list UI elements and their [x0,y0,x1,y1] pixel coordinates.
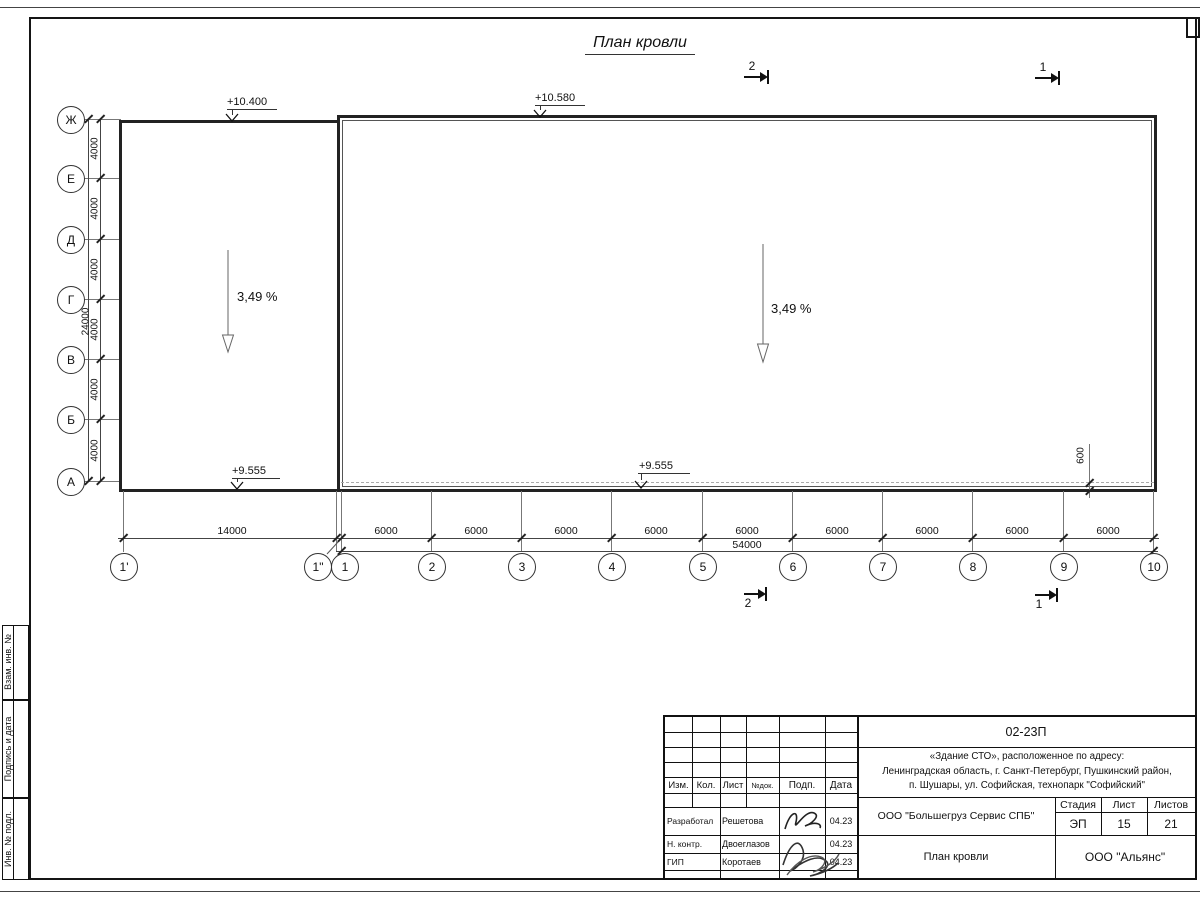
section-arrow-bar [767,70,769,84]
grid-bubble-col: 8 [959,553,987,581]
grid-bubble-row: А [57,468,85,496]
stamp-role: ГИП [667,853,720,870]
axis-line [1063,491,1064,552]
elevation-underline [535,105,585,106]
stamp-line [665,732,857,733]
dim-label-total: 54000 [717,539,777,551]
stamp-role: Н. контр. [667,835,720,853]
axis-line [431,491,432,552]
stamp-sheet-label: Лист [1101,797,1147,812]
dim-label: 6000 [361,525,411,537]
stamp-line [665,747,1195,748]
stamp-doc-number: 02-23П [857,717,1195,747]
drawing-title-wrap: План кровли [550,34,730,55]
stamp-person-name: Решетова [722,807,765,835]
dim-label: 6000 [992,525,1042,537]
grid-bubble-col: 6 [779,553,807,581]
grid-bubble-row: Ж [57,106,85,134]
stamp-role: Разработал [667,807,720,835]
grid-bubble-col: 4 [598,553,626,581]
dim-label-600: 600 [1076,441,1087,471]
elevation-arrow-icon [225,113,239,122]
dim-label-4000: 4000 [90,250,101,290]
axis-line [521,491,522,552]
stamp-sheets-value: 21 [1147,812,1195,835]
frame-strip-divider [13,625,14,880]
stamp-col-data: Дата [825,777,857,793]
dim-label: 6000 [812,525,862,537]
grid-bubble-col: 9 [1050,553,1078,581]
stamp-person-name: Двоеглазов [722,835,777,853]
corner-stamp-box [1186,17,1200,38]
stamp-col-izm: Изм. [665,777,692,793]
dim-label: 6000 [631,525,681,537]
section-arrow-bar [1058,71,1060,85]
stamp-date: 04.23 [825,835,857,853]
axis-line [611,491,612,552]
stamp-person-name: Коротаев [722,853,777,870]
stamp-sheet-value: 15 [1101,812,1147,835]
stamp-col-list: Лист [720,777,746,793]
grid-bubble-row: Г [57,286,85,314]
grid-bubble-col: 5 [689,553,717,581]
stamp-drawing-title: План кровли [857,835,1055,878]
stamp-address: «Здание СТО», расположенное по адресу: Л… [859,750,1195,795]
bubble-leader-line [326,541,340,555]
section-arrow-bar [1056,588,1058,602]
grid-bubble-col: 7 [869,553,897,581]
dim-label: 6000 [541,525,591,537]
stamp-date: 04.23 [825,807,857,835]
stamp-stage-label: Стадия [1055,797,1101,812]
dim-label-4000: 4000 [90,129,101,169]
grid-bubble-col: 3 [508,553,536,581]
grid-bubble-col: 1' [110,553,138,581]
dim-label: 6000 [451,525,501,537]
elevation-leader [641,473,642,480]
stamp-org: ООО "Большегруз Сервис СПБ" [857,797,1055,835]
grid-bubble-col: 1" [304,553,332,581]
section-mark-line [744,593,758,595]
frame-strip-label: Подпись и дата [3,701,13,797]
grid-bubble-row: В [57,346,85,374]
title-block: Изм. Кол. Лист №док. Подп. Дата Разработ… [663,715,1197,880]
axis-line [702,491,703,552]
elevation-underline [227,109,277,110]
slope-label: 3,49 % [771,301,811,316]
dim-label: 6000 [1083,525,1133,537]
dim-label-4000: 4000 [90,370,101,410]
grid-bubble-col: 1 [331,553,359,581]
section-mark-line [744,76,760,78]
stamp-col-kol: Кол. [692,777,720,793]
elevation-label: +10.580 [535,92,575,104]
page-title: План кровли [585,34,695,55]
dim-label: 14000 [202,525,262,537]
grid-bubble-row: Б [57,406,85,434]
stamp-date: 04.23 [825,853,857,870]
elevation-arrow-icon [230,481,244,490]
stamp-address-line: «Здание СТО», расположенное по адресу: [859,750,1195,765]
section-mark-label: 2 [740,596,756,610]
drawing-sheet: Взам. инв. № Подпись и дата Инв. № подл.… [0,0,1200,900]
dim-label-4000: 4000 [90,431,101,471]
slope-arrow-icon [755,244,771,364]
axis-line [123,491,124,552]
stamp-col-podp: Подп. [779,777,825,793]
axis-line [792,491,793,552]
elevation-label: +9.555 [639,460,673,472]
roof-edge-dashed-line [341,482,1154,483]
elevation-arrow-icon [634,480,648,489]
roof-block-right [337,115,1157,492]
section-mark-label: 1 [1035,60,1051,74]
axis-line [882,491,883,552]
elevation-underline [638,473,690,474]
frame-strip-label: Взам. инв. № [3,627,13,697]
grid-bubble-row: Е [57,165,85,193]
stamp-line [665,762,857,763]
grid-bubble-col: 10 [1140,553,1168,581]
outer-border-top [0,7,1200,8]
section-mark-line [1035,77,1051,79]
elevation-label: +9.555 [232,465,266,477]
section-mark-label: 2 [744,59,760,73]
dim-label: 6000 [902,525,952,537]
grid-bubble-col: 2 [418,553,446,581]
axis-line [972,491,973,552]
dim-line-total [336,551,1158,552]
section-arrow-bar [765,587,767,601]
stamp-company: ООО "Альянс" [1055,835,1195,878]
dim-label: 6000 [722,525,772,537]
slope-label: 3,49 % [237,289,277,304]
slope-arrow-icon [220,250,236,354]
stamp-stage-value: ЭП [1055,812,1101,835]
stamp-line [665,870,857,871]
stamp-line [665,793,857,794]
axis-line [341,491,342,552]
axis-line [1153,491,1154,552]
frame-strip-label: Инв. № подл. [3,799,13,879]
stamp-sheets-label: Листов [1147,797,1195,812]
roof-block-right-inner-line [342,120,1152,487]
stamp-col-doc: №док. [746,777,779,793]
grid-bubble-row: Д [57,226,85,254]
elevation-underline [232,478,280,479]
section-mark-line [1035,594,1049,596]
dim-line-1 [118,538,1159,539]
outer-border-bottom [0,891,1200,892]
elevation-arrow-icon [533,109,547,118]
stamp-address-line: Ленинградская область, г. Санкт-Петербур… [859,765,1195,780]
stamp-address-line: п. Шушары, ул. Софийская, технопарк "Соф… [859,779,1195,794]
elevation-label: +10.400 [227,96,267,108]
section-mark-label: 1 [1031,597,1047,611]
dim-label-4000: 4000 [90,189,101,229]
